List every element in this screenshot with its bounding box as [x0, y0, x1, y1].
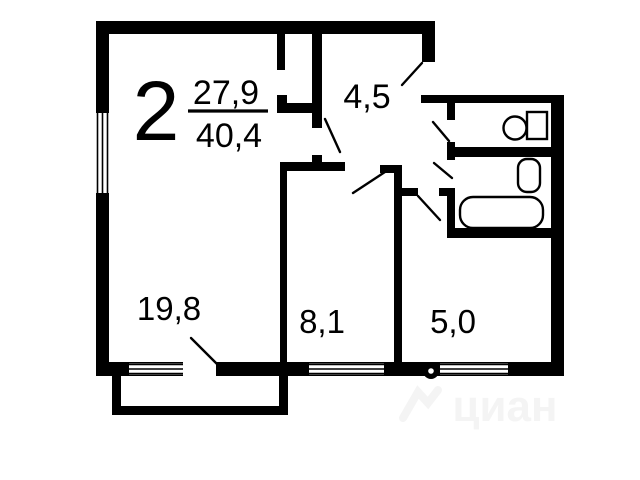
wall-left — [96, 21, 109, 376]
entrance-door-swing — [402, 63, 422, 85]
room-label-living-room: 19,8 — [137, 290, 201, 327]
wall-living-bedroom-divider — [280, 162, 287, 362]
living-door-swing — [325, 119, 340, 152]
wall-kitchen-door-jamb — [394, 188, 418, 196]
wall-living-door-jamb — [312, 155, 322, 162]
sink-icon — [518, 159, 540, 192]
total-area-label: 40,4 — [196, 117, 262, 155]
wall-wc-top — [421, 95, 564, 103]
balcony-wall-bottom — [112, 406, 288, 415]
balcony — [112, 376, 288, 415]
kitchen-window — [440, 364, 508, 375]
room-label-kitchen: 5,0 — [430, 303, 476, 340]
wall-closet-bottom — [277, 103, 313, 113]
bath-door-swing — [434, 163, 452, 178]
watermark-logo-icon — [403, 390, 438, 418]
wall-top — [96, 21, 435, 34]
bedroom-door-swing — [353, 170, 388, 193]
balcony-door-swing — [191, 338, 217, 364]
vent-icon — [423, 363, 439, 379]
living-side-window — [96, 113, 109, 193]
wall-entrance-corner — [422, 34, 435, 62]
wall-wc-bath-divider — [447, 147, 551, 157]
floor-plan: 2 27,9 40,4 4,5 19,8 8,1 5,0 циан — [0, 0, 640, 480]
kitchen-door-swing — [418, 196, 440, 220]
wall-corridor-top — [280, 162, 345, 171]
wall-bath-west-upper — [447, 103, 455, 120]
room-label-bedroom: 8,1 — [299, 303, 345, 340]
living-window — [129, 364, 183, 375]
wall-closet-left-upper — [277, 34, 285, 70]
bathtub-icon — [460, 197, 543, 228]
toilet-icon — [504, 112, 548, 140]
watermark: циан — [403, 382, 558, 431]
rooms-count-label: 2 — [133, 64, 180, 158]
watermark-text: циан — [452, 382, 557, 431]
floor-plan-canvas: 2 27,9 40,4 4,5 19,8 8,1 5,0 циан — [0, 0, 640, 480]
balcony-wall-right — [279, 376, 288, 415]
room-label-hallway: 4,5 — [343, 78, 390, 116]
wall-bath-door-jamb — [439, 188, 447, 196]
wc-door-swing — [433, 122, 449, 141]
wall-bath-bottom — [447, 228, 564, 238]
wall-bath-west-lower — [447, 188, 455, 234]
wall-living-hall — [312, 34, 322, 128]
bedroom-window — [309, 364, 384, 375]
balcony-door-opening — [183, 362, 216, 376]
living-area-label: 27,9 — [193, 74, 259, 112]
